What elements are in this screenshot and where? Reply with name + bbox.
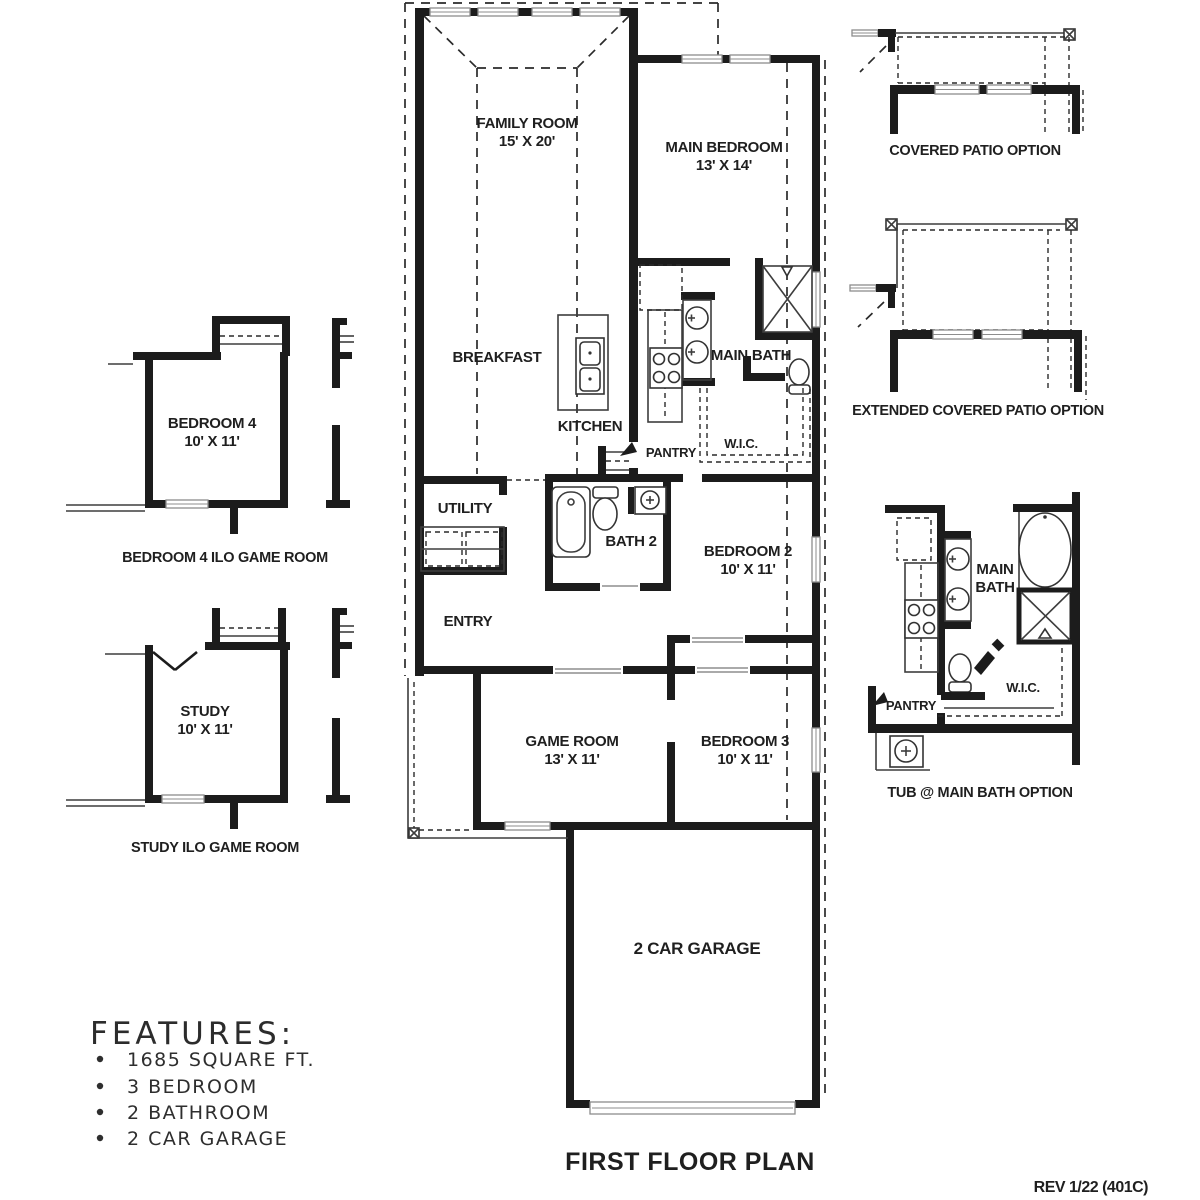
feature-item: 3 BEDROOM [127,1076,258,1098]
caption-covered-patio: COVERED PATIO OPTION [889,143,1061,159]
pantry-shelves [606,452,629,470]
bullet [97,1083,103,1089]
room-dims-bedroom2: 10' X 11' [720,561,775,578]
feature-item: 2 CAR GARAGE [127,1128,288,1150]
bullet [97,1135,103,1141]
main-plan-labels: FAMILY ROOM 15' X 20' MAIN BEDROOM 13' X… [438,115,792,958]
context-wall-fragments [326,608,354,803]
caption-bedroom4: BEDROOM 4 ILO GAME ROOM [122,550,328,566]
option-tub [1019,513,1071,587]
tub-main-bath-option: PANTRY MAIN BATH W.I.C. TUB @ MAIN BATH … [868,492,1080,801]
room-dims-bedroom4: 10' X 11' [184,433,239,450]
room-label-kitchen: KITCHEN [558,418,623,435]
bullet [97,1109,103,1115]
main-bath-toilet [789,359,810,394]
room-label-entry: ENTRY [444,613,493,630]
room-label-main-bedroom: MAIN BEDROOM [665,139,782,156]
bullet [97,1056,103,1062]
caption-study: STUDY ILO GAME ROOM [131,840,299,856]
floor-plan-drawing: FAMILY ROOM 15' X 20' MAIN BEDROOM 13' X… [0,0,1200,1200]
cooktop [650,348,682,388]
option-pantry-sink [876,733,930,770]
extended-covered-patio-option: EXTENDED COVERED PATIO OPTION [850,219,1104,419]
revision-note: REV 1/22 (401C) [1034,1179,1149,1196]
covered-patio-option: COVERED PATIO OPTION [852,29,1083,159]
room-dims-bedroom3: 10' X 11' [717,751,772,768]
room-dims-main-bedroom: 13' X 14' [696,157,752,174]
cased-openings [555,586,748,673]
utility-fixtures [421,527,504,571]
room-dims-game-room: 13' X 11' [544,751,599,768]
option-label-pantry: PANTRY [886,698,937,713]
main-bath-double-sink [683,300,711,380]
room-label-utility: UTILITY [438,500,493,517]
study-option: STUDY 10' X 11' STUDY ILO GAME ROOM [66,608,354,856]
option-label-main-bath-2: BATH [975,579,1014,596]
features-block: FEATURES: 1685 SQUARE FT. 3 BEDROOM 2 BA… [90,1016,315,1150]
room-label-bedroom4: BEDROOM 4 [168,415,257,432]
caption-tub-option: TUB @ MAIN BATH OPTION [887,785,1072,801]
option-label-wic: W.I.C. [1006,680,1040,695]
room-label-family-room: FAMILY ROOM [477,115,578,132]
room-label-bath2: BATH 2 [605,533,656,550]
room-label-wic: W.I.C. [724,436,758,451]
room-dims-family-room: 15' X 20' [499,133,555,150]
room-dims-study: 10' X 11' [177,721,232,738]
room-label-garage: 2 CAR GARAGE [634,939,761,958]
bath2-sink [635,487,666,514]
room-label-bedroom2: BEDROOM 2 [704,543,792,560]
caption-extended-patio: EXTENDED COVERED PATIO OPTION [852,403,1104,419]
option-toilet [949,654,971,692]
option-shower [1019,590,1072,642]
room-label-study: STUDY [180,703,230,720]
room-label-pantry: PANTRY [646,445,697,460]
context-wall-fragments [326,318,354,508]
room-label-main-bath: MAIN BATH [711,347,791,364]
bath2-tub [552,487,590,557]
feature-item: 2 BATHROOM [127,1102,270,1124]
study-double-doors [153,652,197,670]
cooktop [905,600,938,638]
room-label-bedroom3: BEDROOM 3 [701,733,789,750]
kitchen-island-sink [558,315,608,410]
features-heading: FEATURES: [90,1016,295,1052]
option-label-main-bath-1: MAIN [976,561,1013,578]
feature-item: 1685 SQUARE FT. [127,1049,315,1071]
bedroom4-option: BEDROOM 4 10' X 11' BEDROOM 4 ILO GAME R… [66,316,354,566]
pantry-arrow [620,442,637,456]
floor-plan-sheet: FAMILY ROOM 15' X 20' MAIN BEDROOM 13' X… [0,0,1200,1200]
room-label-breakfast: BREAKFAST [453,349,542,366]
angled-wall [974,651,995,675]
garage-door [590,1102,795,1114]
bath2-toilet [593,487,618,530]
option-double-sink [941,531,971,629]
sheet-title: FIRST FLOOR PLAN [565,1148,815,1176]
room-label-game-room: GAME ROOM [525,733,618,750]
refrigerator [897,518,931,560]
refrigerator [640,265,682,310]
